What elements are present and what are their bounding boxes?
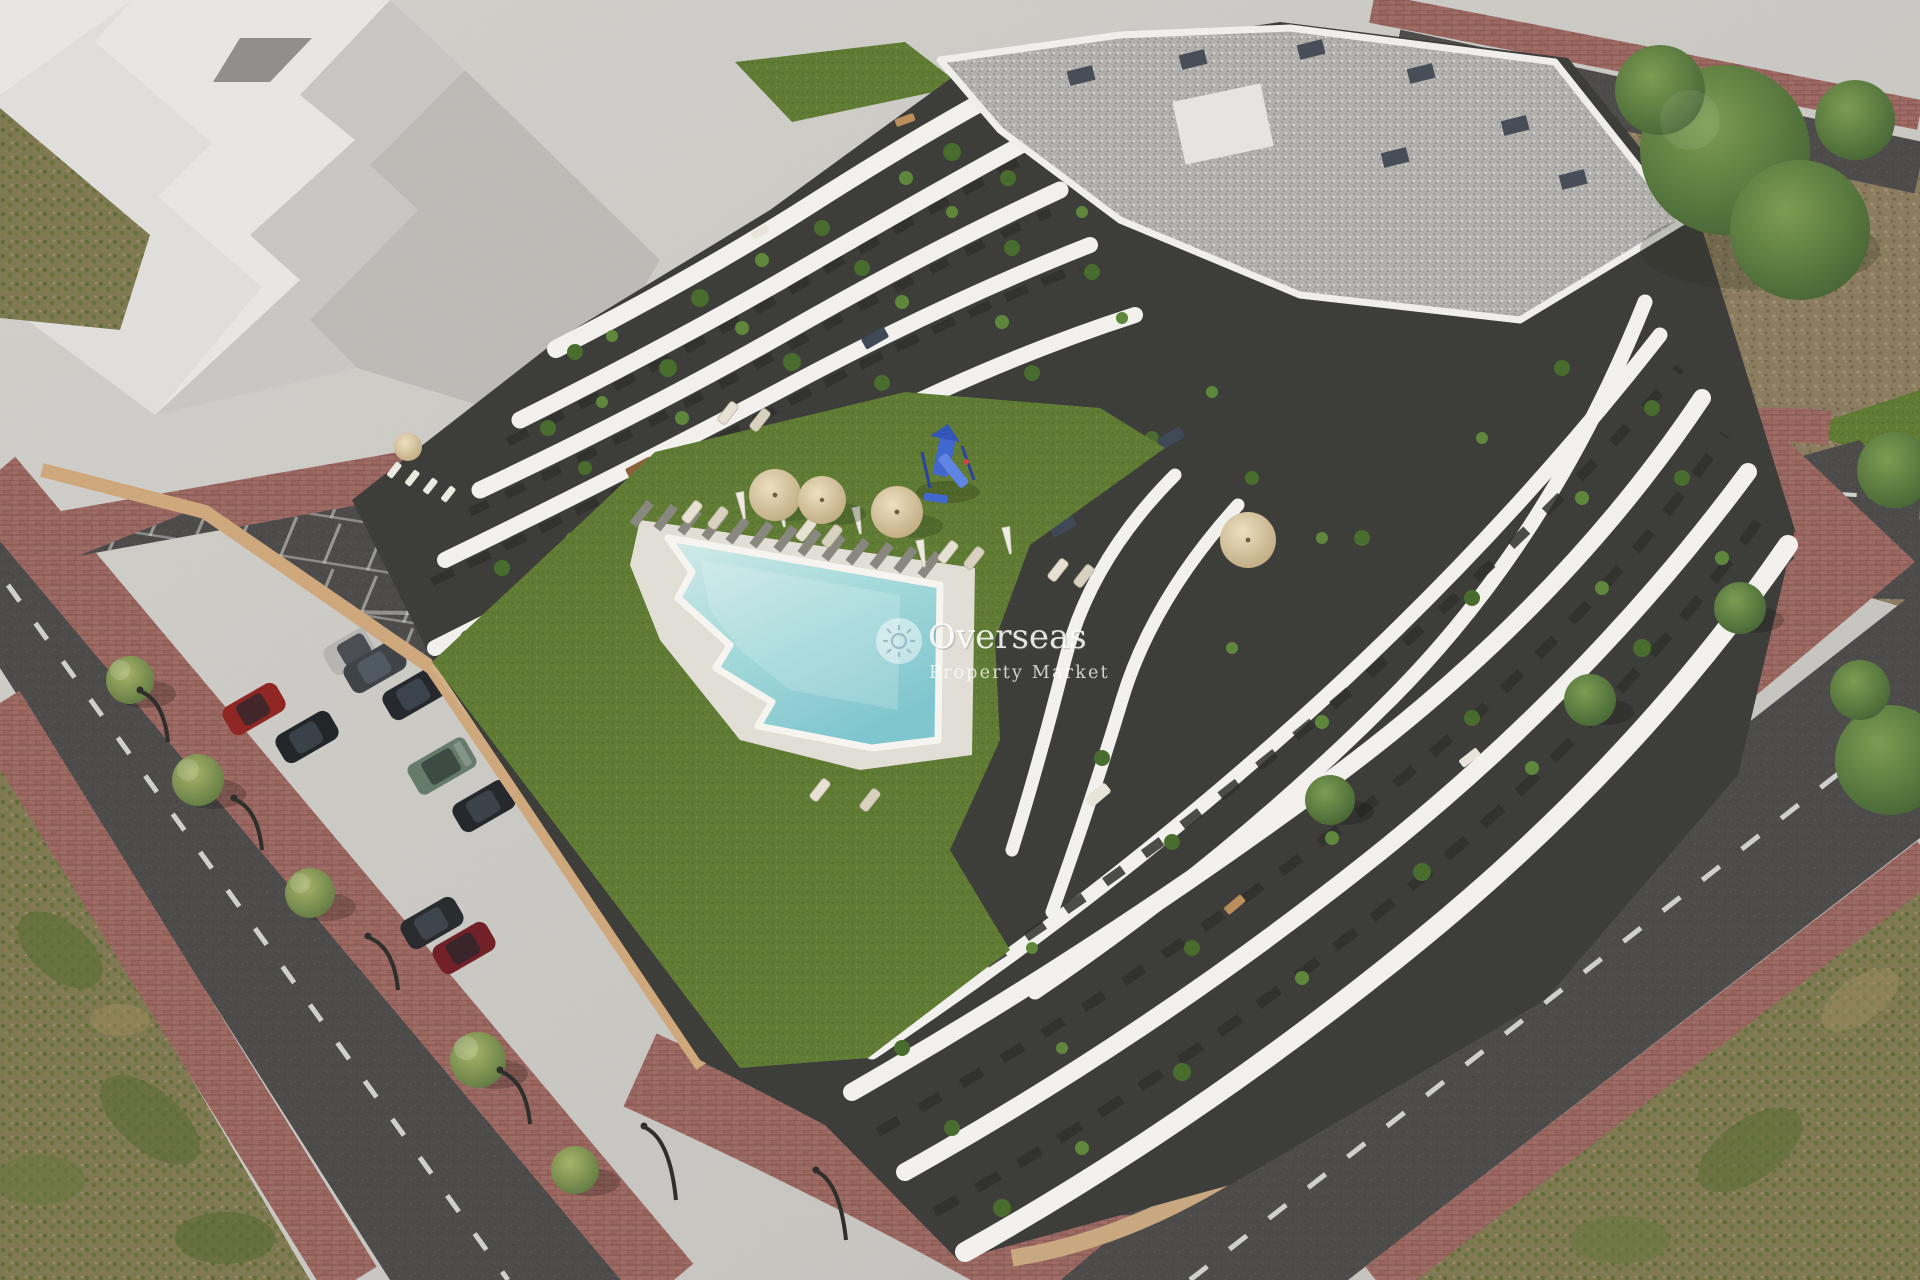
watermark-brand: Overseas [928,617,1087,657]
architectural-render: Overseas Overseas Property Market [0,0,1920,1280]
render-canvas: Overseas Overseas Property Market [0,0,1920,1280]
sun-logo-icon [876,618,922,664]
watermark-tagline: Property Market [929,663,1110,683]
